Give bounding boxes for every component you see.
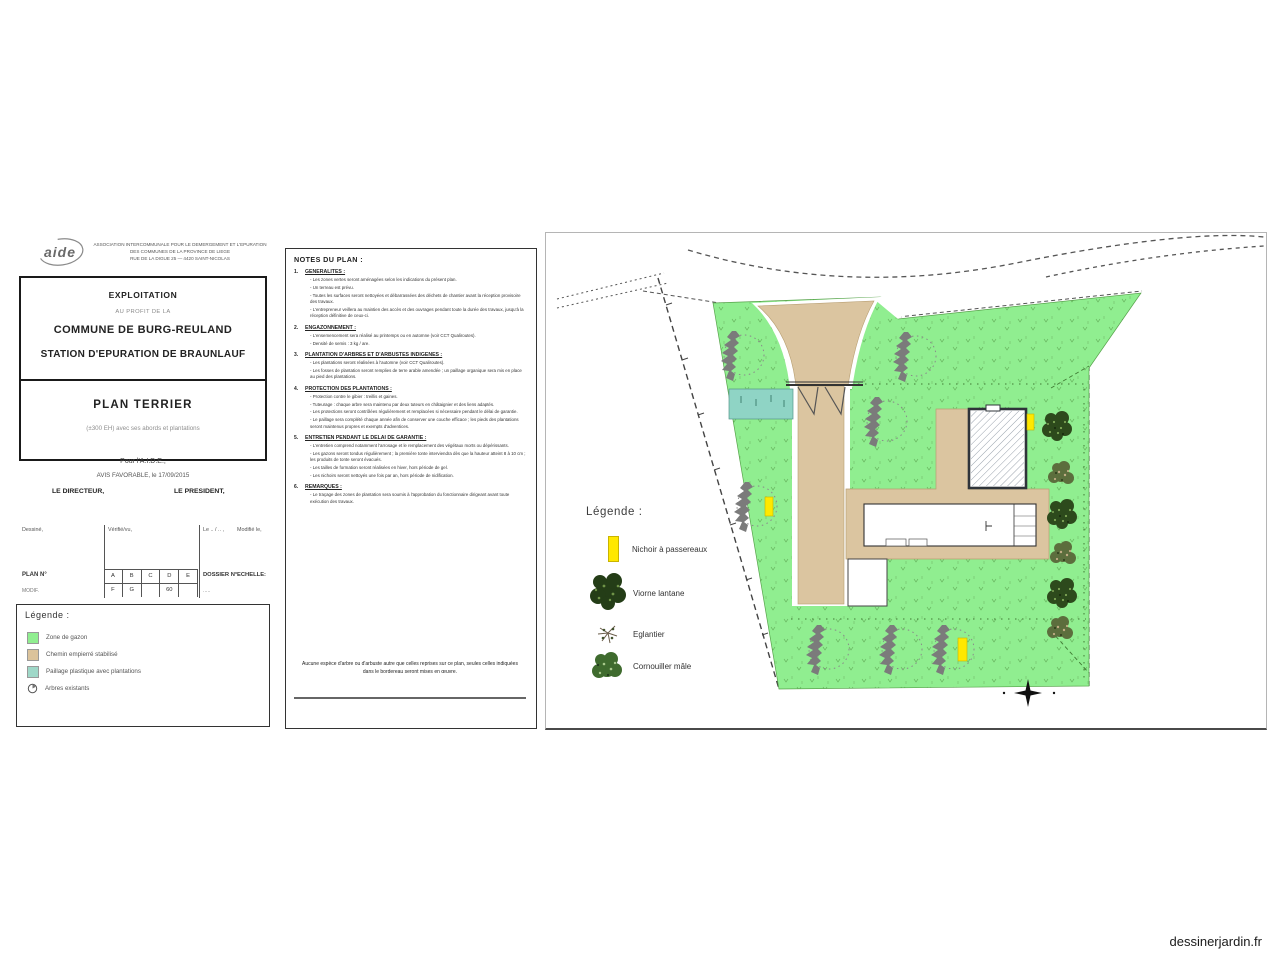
note-bullet: Les tailles de formation seront réalisée… bbox=[305, 465, 526, 471]
note-bullet: Les protections seront contrôlées réguli… bbox=[305, 409, 526, 415]
existing-tree-icon bbox=[27, 683, 38, 694]
notes-section-5: 5. ENTRETIEN PENDANT LE DELAI DE GARANTI… bbox=[294, 435, 526, 479]
section-number: 5. bbox=[294, 435, 298, 441]
notes-section-1: 1. GENERALITES : Les zones vertes seront… bbox=[294, 269, 526, 320]
section-number: 6. bbox=[294, 484, 298, 490]
section-number: 1. bbox=[294, 269, 298, 275]
paillage-swatch bbox=[27, 666, 39, 678]
legend-item-chemin: Chemin empierré stabilisé bbox=[27, 646, 118, 658]
section-number: 4. bbox=[294, 386, 298, 392]
notes-title: NOTES DU PLAN : bbox=[294, 255, 526, 264]
org-line: DES COMMUNES DE LA PROVINCE DE LIEGE bbox=[92, 248, 268, 255]
footnote-line: Aucune espèce d'arbre ou d'arbuste autre… bbox=[296, 661, 524, 669]
road-dashed-lines bbox=[557, 235, 1264, 317]
exploitation-label: EXPLOITATION bbox=[21, 290, 265, 300]
note-bullet: Les zones vertes seront aménagées selon … bbox=[305, 277, 526, 283]
modif-label: MODIF. bbox=[22, 588, 39, 594]
table-label-le: Le .. / .. , bbox=[203, 527, 224, 533]
section-heading: ENTRETIEN PENDANT LE DELAI DE GARANTIE : bbox=[305, 435, 526, 441]
note-bullet: Les nichoirs seront nettoyés une fois pa… bbox=[305, 473, 526, 479]
grid-cell: D bbox=[160, 570, 179, 583]
plan-subtitle: (±300 EH) avec ses abords et plantations bbox=[21, 425, 265, 432]
plan-legend-label: Nichoir à passereaux bbox=[632, 545, 707, 554]
grid-cell: G bbox=[123, 583, 142, 597]
organisation-address: ASSOCIATION INTERCOMMUNALE POUR LE DEMER… bbox=[92, 241, 268, 262]
notes-section-3: 3. PLANTATION D'ARBRES ET D'ARBUSTES IND… bbox=[294, 352, 526, 381]
legend-item-label: Zone de gazon bbox=[46, 634, 87, 641]
station-title: STATION D'EPURATION DE BRAUNLAUF bbox=[21, 349, 265, 360]
watermark: dessinerjardin.fr bbox=[1170, 934, 1263, 949]
org-line: RUE DE LA DIGUE 25 — 4420 SAINT-NICOLAS bbox=[92, 255, 268, 262]
notes-footnote: Aucune espèce d'arbre ou d'arbuste autre… bbox=[296, 661, 524, 676]
approval-pour: Pour l'A.I.D.E., bbox=[16, 458, 270, 465]
au-profit-label: AU PROFIT DE LA bbox=[21, 309, 265, 315]
plan-number-label: PLAN N° bbox=[22, 572, 47, 578]
nichoir-legend-icon bbox=[608, 536, 619, 562]
plan-legend-label: Cornouiller mâle bbox=[633, 662, 691, 671]
section-heading: PROTECTION DES PLANTATIONS : bbox=[305, 386, 526, 392]
title-block-sheet: aide ASSOCIATION INTERCOMMUNALE POUR LE … bbox=[16, 232, 270, 727]
note-bullet: L'entrepreneur veillera au maintien des … bbox=[305, 307, 526, 320]
approval-directeur: LE DIRECTEUR, bbox=[52, 488, 104, 495]
legend-item-gazon: Zone de gazon bbox=[27, 629, 87, 641]
title-box: EXPLOITATION AU PROFIT DE LA COMMUNE DE … bbox=[19, 276, 267, 461]
note-bullet: Protection contre le gibier : treillis e… bbox=[305, 394, 526, 400]
section-heading: REMARQUES : bbox=[305, 484, 526, 490]
site-plan-drawing bbox=[546, 233, 1266, 728]
small-outbuilding bbox=[848, 559, 887, 606]
note-bullet: Toutes les surfaces seront nettoyées et … bbox=[305, 293, 526, 306]
notes-sheet: NOTES DU PLAN : 1. GENERALITES : Les zon… bbox=[285, 248, 537, 729]
section-heading: PLANTATION D'ARBRES ET D'ARBUSTES INDIGE… bbox=[305, 352, 526, 358]
title-box-divider bbox=[21, 379, 265, 381]
plan-legend-label: Viorne lantane bbox=[633, 589, 684, 598]
footnote-line: dans le bordereau seront mises en œuvre. bbox=[296, 669, 524, 677]
legend-item-label: Chemin empierré stabilisé bbox=[46, 651, 118, 658]
note-bullet: Les fosses de plantation seront remplies… bbox=[305, 368, 526, 381]
section-number: 2. bbox=[294, 325, 298, 331]
grid-cell: E bbox=[179, 570, 198, 583]
grid-cell: A bbox=[104, 570, 123, 583]
echelle-label: ECHELLE: bbox=[237, 572, 266, 578]
grid-cell bbox=[142, 583, 161, 597]
paillage-basin bbox=[729, 389, 793, 419]
logo-text: aide bbox=[44, 244, 76, 260]
org-line: ASSOCIATION INTERCOMMUNALE POUR LE DEMER… bbox=[92, 241, 268, 248]
main-building bbox=[969, 405, 1026, 488]
aide-logo: aide bbox=[36, 236, 84, 270]
section-heading: GENERALITES : bbox=[305, 269, 526, 275]
grid-cell: F bbox=[104, 583, 123, 597]
table-label-dessine: Dessiné, bbox=[22, 527, 43, 533]
chemin-swatch bbox=[27, 649, 39, 661]
note-bullet: L'ensemencement sera réalisé au printemp… bbox=[305, 333, 526, 339]
site-plan-sheet: Légende : Nichoir à passereaux Viorne la… bbox=[545, 232, 1267, 730]
note-bullet: Les gazons seront tondus régulièrement ;… bbox=[305, 451, 526, 464]
note-bullet: L'entretien comprend notamment l'arrosag… bbox=[305, 443, 526, 449]
section-heading: ENGAZONNEMENT : bbox=[305, 325, 526, 331]
viorne-legend-icon bbox=[588, 571, 628, 611]
notes-section-4: 4. PROTECTION DES PLANTATIONS : Protecti… bbox=[294, 386, 526, 430]
notes-bottom-rule bbox=[294, 697, 526, 699]
grid-cell: 60 bbox=[160, 583, 179, 597]
grid-cell bbox=[179, 583, 198, 597]
legend-item-label: Arbres existants bbox=[45, 685, 89, 692]
note-bullet: Densité de semis : 3 kg / are. bbox=[305, 341, 526, 347]
table-label-modifie: Modifié le, bbox=[237, 527, 262, 533]
sheet-legend: Légende : Zone de gazon Chemin empierré … bbox=[16, 604, 270, 727]
note-bullet: Les plantations seront réalisées à l'aut… bbox=[305, 360, 526, 366]
eglantier-legend-icon bbox=[596, 621, 620, 645]
plan-legend-title: Légende : bbox=[586, 506, 643, 518]
note-bullet: Un terreau est prévu. bbox=[305, 285, 526, 291]
notes-body: NOTES DU PLAN : 1. GENERALITES : Les zon… bbox=[294, 255, 526, 510]
note-bullet: Le paillage sera complété chaque année a… bbox=[305, 417, 526, 430]
notes-section-6: 6. REMARQUES : Le traçage des zones de p… bbox=[294, 484, 526, 505]
grid-cell: B bbox=[123, 570, 142, 583]
revision-grid: A B C D E F G 60 bbox=[104, 525, 200, 598]
legend-item-label: Paillage plastique avec plantations bbox=[46, 668, 141, 675]
commune-title: COMMUNE DE BURG-REULAND bbox=[21, 324, 265, 336]
gazon-swatch bbox=[27, 632, 39, 644]
plan-title: PLAN TERRIER bbox=[21, 399, 265, 411]
dossier-number-value: ..... bbox=[203, 588, 211, 594]
clarifier-basin bbox=[864, 504, 1036, 546]
grid-cell: C bbox=[142, 570, 161, 583]
legend-item-paillage: Paillage plastique avec plantations bbox=[27, 663, 141, 675]
note-bullet: Le traçage des zones de plantation sera … bbox=[305, 492, 526, 505]
revision-grid-rows: A B C D E F G 60 bbox=[104, 569, 198, 598]
legend-item-arbres: Arbres existants bbox=[27, 680, 89, 692]
cornouiller-legend-icon bbox=[591, 651, 623, 683]
sheet-legend-title: Légende : bbox=[25, 610, 70, 620]
plan-legend-label: Eglantier bbox=[633, 630, 665, 639]
note-bullet: Tuteurage : chaque arbre sera maintenu p… bbox=[305, 402, 526, 408]
section-number: 3. bbox=[294, 352, 298, 358]
dossier-number-label: DOSSIER N° bbox=[203, 572, 237, 578]
approval-avis: AVIS FAVORABLE, le 17/09/2015 bbox=[16, 472, 270, 479]
notes-section-2: 2. ENGAZONNEMENT : L'ensemencement sera … bbox=[294, 325, 526, 347]
approval-president: LE PRESIDENT, bbox=[174, 488, 225, 495]
